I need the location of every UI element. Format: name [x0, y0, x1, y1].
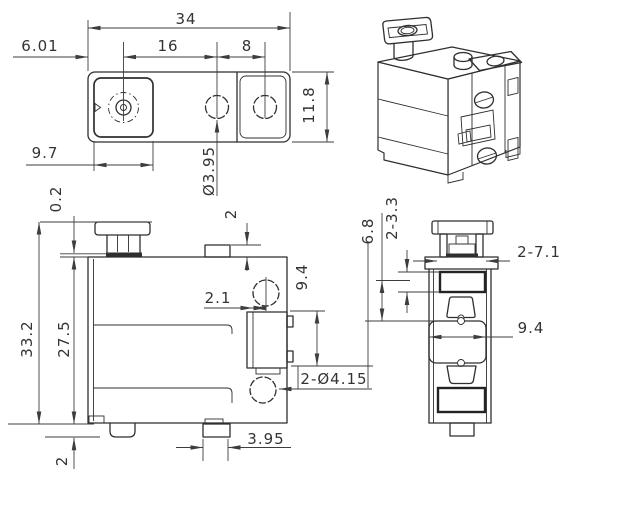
side-foot [450, 423, 474, 436]
knob-cap [95, 222, 150, 235]
side-square-pocket [429, 321, 486, 363]
dim-window-offset: 6.8 [359, 218, 377, 245]
cad-drawing-canvas: 34 6.01 16 8 9.7 Ø3.95 11.8 [0, 0, 631, 512]
side-window-bottom [438, 388, 485, 412]
isometric-view [378, 17, 522, 183]
left-foot [110, 423, 135, 437]
middle-foot [203, 424, 230, 437]
dim-window-height: 2-3.3 [383, 196, 401, 240]
dim-window-width: 2-7.1 [517, 243, 561, 261]
side-window-top [440, 272, 485, 292]
front-body-outline [88, 257, 287, 423]
dim-foot-width: 3.95 [247, 430, 284, 448]
dim-wall-to-center: 2.1 [205, 289, 232, 307]
dim-foot-height: 2 [53, 456, 71, 467]
dim-overall-depth: 11.8 [300, 86, 318, 123]
lower-hole [250, 377, 276, 403]
side-knob-cap [432, 221, 493, 234]
side-dome [447, 297, 475, 318]
side-dome-lower [447, 366, 476, 384]
side-view: 6.8 2-3.3 2-7.1 9.4 [359, 196, 561, 436]
right-section-inner [240, 76, 286, 138]
connector-rib-bottom [287, 351, 293, 362]
connector-rib-top [287, 316, 293, 327]
dim-pocket-width: 9.7 [32, 144, 59, 162]
dim-boss-height: 2 [222, 209, 240, 220]
dim-knob-step: 0.2 [47, 186, 65, 213]
dim-overall-height: 33.2 [18, 320, 36, 357]
iso-tnut-cap [383, 17, 433, 43]
side-flange [425, 257, 498, 269]
foot-notch [89, 416, 104, 423]
knob-base [106, 253, 142, 257]
dim-hole-pitch-right: 8 [242, 37, 253, 55]
dim-edge-to-hole: 6.01 [21, 37, 58, 55]
dim-overall-width: 34 [175, 10, 196, 28]
top-view: 34 6.01 16 8 9.7 Ø3.95 11.8 [13, 10, 334, 196]
top-boss [205, 245, 230, 257]
key-notch [95, 104, 101, 112]
dim-hole-diameter: Ø3.95 [200, 146, 218, 196]
front-view: 0.2 33.2 27.5 2 2 2.1 9.4 2-Ø4.15 3.95 [8, 186, 373, 469]
connector-step [256, 368, 280, 374]
dim-hole-callout: 2-Ø4.15 [300, 370, 367, 388]
top-view-outline [88, 72, 290, 142]
dim-pocket-width-side: 9.4 [518, 319, 545, 337]
technical-drawing: 34 6.01 16 8 9.7 Ø3.95 11.8 [0, 0, 631, 512]
dim-body-height: 27.5 [55, 320, 73, 357]
dim-connector-height: 9.4 [293, 264, 311, 291]
dim-hole-pitch-left: 16 [157, 37, 178, 55]
